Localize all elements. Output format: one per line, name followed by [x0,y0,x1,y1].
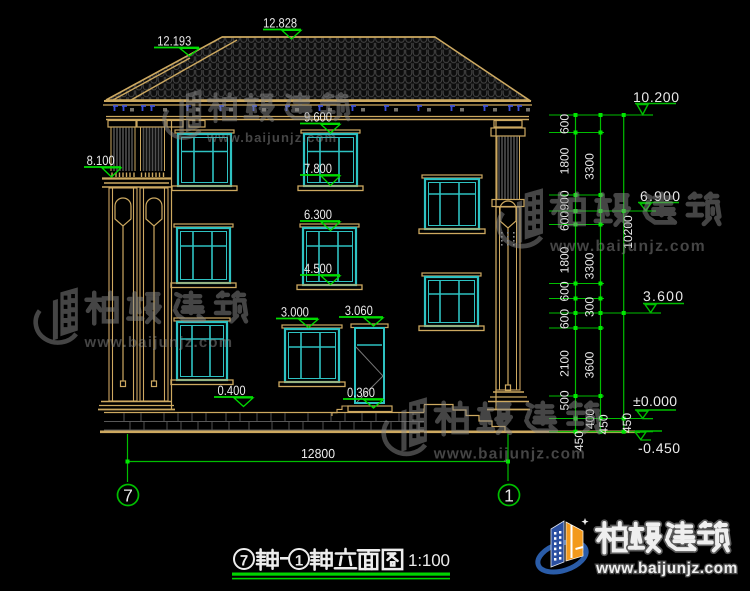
svg-text:450: 450 [620,413,634,433]
svg-text:3300: 3300 [583,153,597,180]
svg-text:12.828: 12.828 [263,16,297,31]
svg-text:10.200: 10.200 [633,89,679,105]
svg-text:7: 7 [123,486,133,506]
svg-text:www.baijunjz.com: www.baijunjz.com [595,560,738,577]
svg-text:-0.450: -0.450 [638,440,680,456]
svg-text:7: 7 [240,553,248,570]
svg-text:3.000: 3.000 [281,305,309,320]
svg-text:6.300: 6.300 [304,207,332,222]
svg-text:12800: 12800 [301,446,335,461]
svg-text:3.600: 3.600 [643,288,683,304]
svg-text:600: 600 [558,114,572,134]
svg-text:0.400: 0.400 [218,383,246,398]
svg-text:2100: 2100 [558,350,572,377]
svg-text:12.193: 12.193 [157,34,191,49]
svg-text:0.360: 0.360 [347,385,375,400]
svg-text:600: 600 [558,281,572,301]
svg-text:1:100: 1:100 [408,551,450,570]
svg-text:7.800: 7.800 [304,161,332,176]
svg-text:3300: 3300 [583,252,597,279]
svg-text:3600: 3600 [583,351,597,378]
svg-text:±0.000: ±0.000 [633,393,677,409]
svg-text:4.500: 4.500 [304,261,332,276]
svg-text:300: 300 [583,297,597,317]
svg-text:3.060: 3.060 [345,303,373,318]
svg-text:1800: 1800 [558,147,572,174]
svg-text:8.100: 8.100 [87,153,115,168]
svg-text:1: 1 [504,486,514,506]
svg-text:600: 600 [558,309,572,329]
svg-text:1: 1 [295,553,303,570]
